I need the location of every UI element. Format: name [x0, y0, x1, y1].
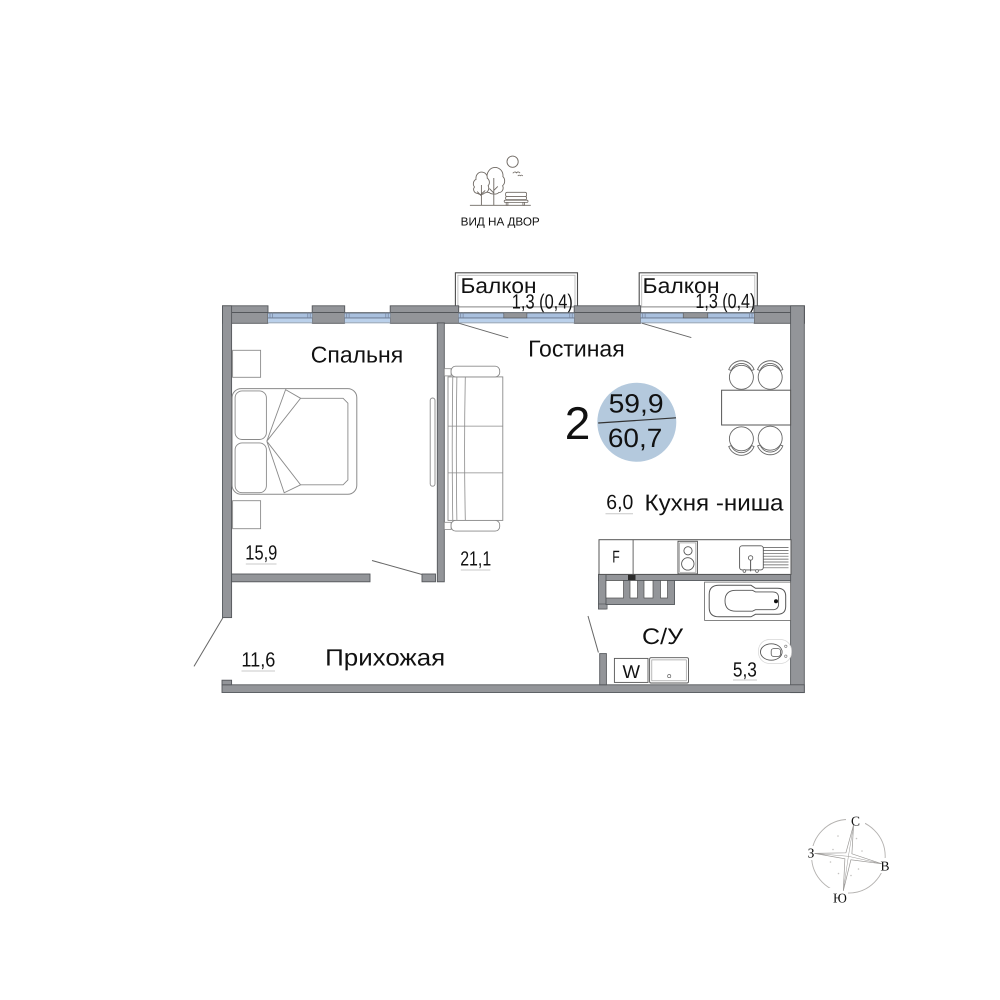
svg-text:Прихожая: Прихожая	[325, 644, 445, 670]
svg-text:Спальня: Спальня	[311, 342, 403, 368]
svg-text:Гостиная: Гостиная	[528, 336, 625, 362]
svg-text:59,9: 59,9	[609, 388, 664, 418]
svg-text:1,3 (0,4): 1,3 (0,4)	[512, 291, 573, 314]
svg-text:60,7: 60,7	[608, 423, 663, 453]
svg-text:6,0: 6,0	[606, 491, 633, 514]
svg-text:21,1: 21,1	[460, 548, 491, 571]
svg-text:2: 2	[565, 397, 591, 449]
svg-text:W: W	[622, 661, 640, 682]
svg-text:Ю: Ю	[833, 890, 847, 905]
svg-text:1,3 (0,4): 1,3 (0,4)	[695, 290, 755, 313]
svg-text:Кухня -ниша: Кухня -ниша	[645, 490, 784, 516]
svg-text:В: В	[880, 859, 889, 874]
svg-text:F: F	[612, 548, 620, 567]
svg-text:15,9: 15,9	[245, 541, 277, 564]
svg-text:ВИД НА ДВОР: ВИД НА ДВОР	[461, 215, 540, 228]
svg-text:5,3: 5,3	[733, 658, 757, 681]
svg-text:11,6: 11,6	[241, 648, 275, 671]
svg-text:С/У: С/У	[642, 624, 684, 649]
svg-text:С: С	[851, 813, 860, 828]
svg-text:З: З	[808, 846, 815, 861]
